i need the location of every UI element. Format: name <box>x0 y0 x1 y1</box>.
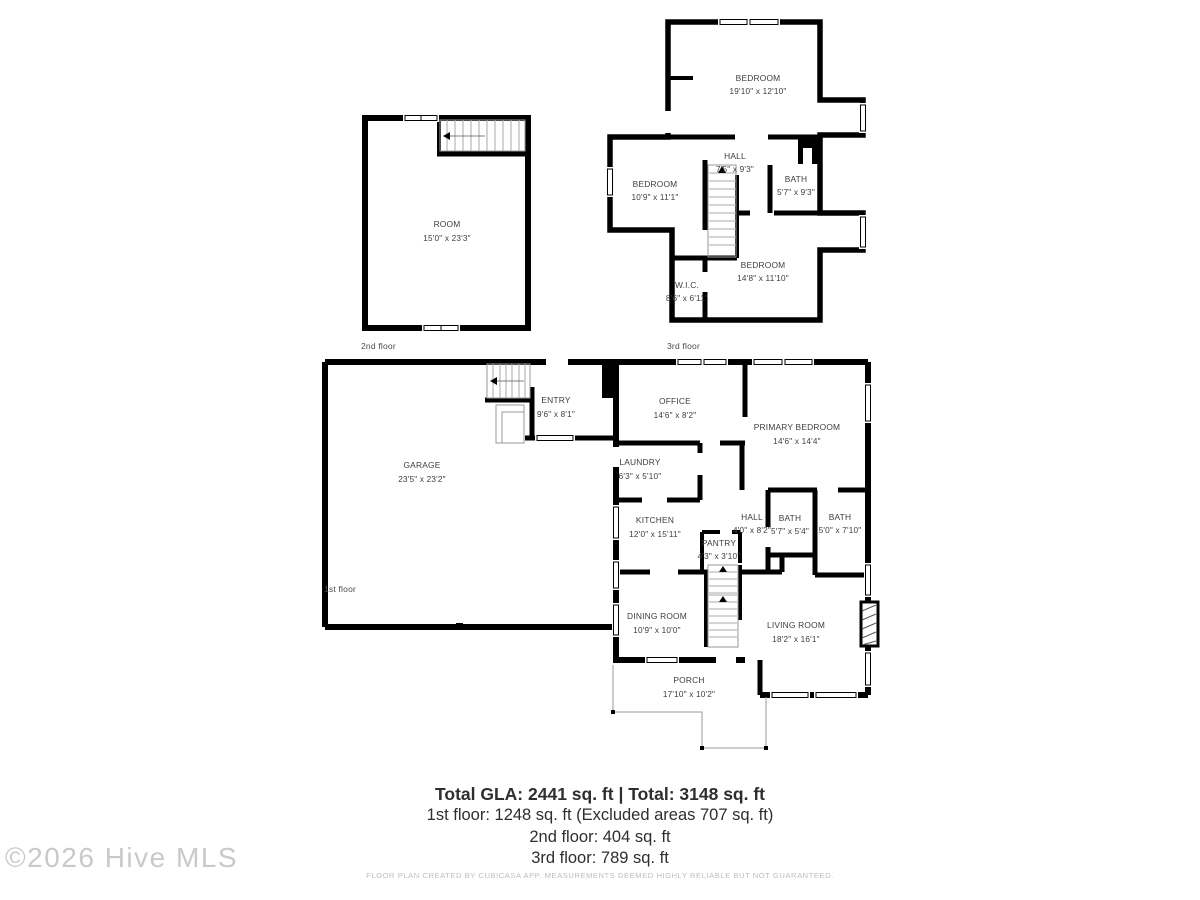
svg-text:8'6" x 6'11": 8'6" x 6'11" <box>666 294 708 303</box>
main-staircase-icon <box>708 565 738 647</box>
room-label-room: ROOM 15'0" x 23'3" <box>423 219 471 243</box>
svg-text:7'5" x 9'3": 7'5" x 9'3" <box>716 165 754 174</box>
svg-text:14'6" x 14'4": 14'6" x 14'4" <box>773 437 821 446</box>
room-label-dining-room: DINING ROOM 10'9" x 10'0" <box>627 611 687 635</box>
room-label-bedroom-bottom: BEDROOM 14'8" x 11'10" <box>737 260 789 283</box>
mls-watermark: ©2026 Hive MLS <box>5 842 238 874</box>
room-label-bath1: BATH 5'7" x 5'4" <box>771 513 809 536</box>
svg-text:9'6" x 8'1": 9'6" x 8'1" <box>537 410 575 419</box>
total-gla-line: Total GLA: 2441 sq. ft | Total: 3148 sq.… <box>0 784 1200 805</box>
svg-text:10'9" x 11'1": 10'9" x 11'1" <box>632 193 679 202</box>
staircase-icon <box>440 120 525 151</box>
svg-text:OFFICE: OFFICE <box>659 396 691 406</box>
svg-text:ROOM: ROOM <box>434 219 461 229</box>
caption-2nd-floor: 2nd floor <box>361 341 396 351</box>
room-label-primary-bedroom: PRIMARY BEDROOM 14'6" x 14'4" <box>754 422 840 446</box>
svg-text:14'8" x 11'10": 14'8" x 11'10" <box>737 274 789 283</box>
svg-text:15'0" x 23'3": 15'0" x 23'3" <box>423 234 471 243</box>
floor-plan-1st: GARAGE 23'5" x 23'2" ENTRY 9'6" x 8'1" O… <box>320 355 885 765</box>
svg-text:HALL: HALL <box>741 512 763 522</box>
svg-text:BEDROOM: BEDROOM <box>633 179 678 189</box>
caption-3rd-floor: 3rd floor <box>667 341 700 351</box>
svg-text:BATH: BATH <box>785 174 808 184</box>
svg-text:PRIMARY BEDROOM: PRIMARY BEDROOM <box>754 422 840 432</box>
svg-text:23'5" x 23'2": 23'5" x 23'2" <box>398 475 446 484</box>
caption-1st-floor: 1st floor <box>324 584 356 594</box>
svg-text:17'10" x 10'2": 17'10" x 10'2" <box>663 690 715 699</box>
svg-text:BEDROOM: BEDROOM <box>741 260 786 270</box>
garage-staircase-icon <box>487 364 530 443</box>
room-label-pantry: PANTRY 4'3" x 3'10" <box>698 538 741 561</box>
svg-text:HALL: HALL <box>724 151 746 161</box>
svg-text:GARAGE: GARAGE <box>403 460 440 470</box>
first-floor-area-line: 1st floor: 1248 sq. ft (Excluded areas 7… <box>0 805 1200 827</box>
svg-text:14'6" x 8'2": 14'6" x 8'2" <box>654 411 697 420</box>
svg-text:LAUNDRY: LAUNDRY <box>619 457 660 467</box>
room-label-entry: ENTRY 9'6" x 8'1" <box>537 395 575 419</box>
svg-text:4'3" x 3'10": 4'3" x 3'10" <box>698 552 741 561</box>
floor-plan-sheet: ROOM 15'0" x 23'3" <box>0 0 1200 900</box>
svg-text:BEDROOM: BEDROOM <box>736 73 781 83</box>
svg-text:18'2" x 16'1": 18'2" x 16'1" <box>772 635 820 644</box>
room-label-kitchen: KITCHEN 12'0" x 15'11" <box>629 515 681 539</box>
svg-text:BATH: BATH <box>779 513 802 523</box>
svg-text:W.I.C.: W.I.C. <box>675 280 699 290</box>
room-label-garage: GARAGE 23'5" x 23'2" <box>398 460 446 484</box>
svg-text:DINING ROOM: DINING ROOM <box>627 611 687 621</box>
staircase-icon <box>708 165 736 257</box>
svg-text:10'9" x 10'0": 10'9" x 10'0" <box>633 626 681 635</box>
svg-text:PORCH: PORCH <box>673 675 704 685</box>
svg-text:19'10" x 12'10": 19'10" x 12'10" <box>729 87 786 96</box>
svg-text:BATH: BATH <box>829 512 852 522</box>
svg-text:LIVING ROOM: LIVING ROOM <box>767 620 825 630</box>
room-label-office: OFFICE 14'6" x 8'2" <box>654 396 697 420</box>
floor-plan-3rd: BEDROOM 19'10" x 12'10" HALL 7'5" x 9'3"… <box>600 15 875 335</box>
fireplace-icon <box>861 602 878 646</box>
room-label-laundry: LAUNDRY 6'3" x 5'10" <box>619 457 662 481</box>
svg-text:6'3" x 5'10": 6'3" x 5'10" <box>619 472 662 481</box>
svg-text:5'0" x 7'10": 5'0" x 7'10" <box>819 526 862 535</box>
svg-text:5'7" x 5'4": 5'7" x 5'4" <box>771 527 809 536</box>
room-label-hall: HALL 4'0" x 8'2" <box>733 512 771 535</box>
room-label-bedroom-top: BEDROOM 19'10" x 12'10" <box>729 73 786 96</box>
svg-text:PANTRY: PANTRY <box>702 538 737 548</box>
room-label-porch: PORCH 17'10" x 10'2" <box>663 675 715 699</box>
room-label-bedroom-left: BEDROOM 10'9" x 11'1" <box>632 179 679 202</box>
floor-plan-2nd: ROOM 15'0" x 23'3" <box>355 110 540 355</box>
room-label-living-room: LIVING ROOM 18'2" x 16'1" <box>767 620 825 644</box>
svg-text:5'7" x 9'3": 5'7" x 9'3" <box>777 188 815 197</box>
svg-text:ENTRY: ENTRY <box>541 395 570 405</box>
svg-text:12'0" x 15'11": 12'0" x 15'11" <box>629 530 681 539</box>
svg-text:KITCHEN: KITCHEN <box>636 515 674 525</box>
room-label-hall: HALL 7'5" x 9'3" <box>716 151 754 174</box>
room-label-bath2: BATH 5'0" x 7'10" <box>819 512 862 535</box>
room-label-bath: BATH 5'7" x 9'3" <box>777 174 815 197</box>
svg-text:4'0" x 8'2": 4'0" x 8'2" <box>733 526 771 535</box>
